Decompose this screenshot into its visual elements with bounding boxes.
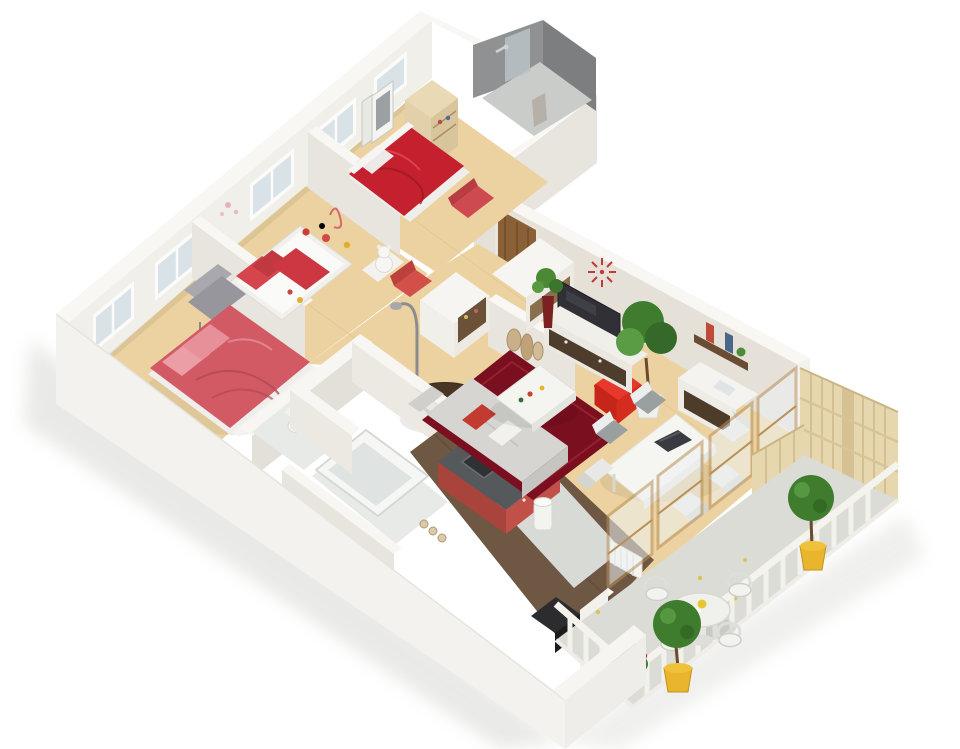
lamp-shade	[390, 302, 402, 310]
toy	[297, 297, 303, 303]
wall-decal	[225, 202, 231, 208]
shelf-plant	[737, 348, 746, 357]
drawer-knob	[598, 359, 601, 362]
foliage	[788, 475, 834, 521]
table-item	[527, 391, 532, 396]
apartment-isometric-svg	[0, 0, 960, 749]
frame-back	[362, 95, 372, 147]
foliage-dark	[680, 625, 694, 639]
foliage	[616, 328, 644, 356]
toy	[287, 289, 292, 294]
teddy-ear	[387, 245, 391, 249]
toy-rocking-horse	[322, 234, 330, 242]
lemon	[698, 600, 707, 609]
table-item	[519, 398, 524, 403]
red-vase	[542, 296, 554, 328]
foliage-light	[794, 482, 810, 498]
wall-decal	[220, 212, 224, 216]
table-item	[540, 386, 545, 391]
teddy-ear	[377, 245, 381, 249]
foliage	[653, 600, 701, 648]
clothes	[446, 116, 450, 120]
shelf-item	[464, 315, 468, 319]
pot-rim	[664, 663, 692, 673]
shelf-item	[474, 309, 478, 313]
foliage	[645, 322, 677, 354]
clothes	[438, 120, 442, 124]
drawer-knob	[564, 340, 567, 343]
fence-post	[842, 387, 854, 483]
floor-plan-3d-render	[0, 0, 960, 749]
foliage-dark	[813, 499, 827, 513]
drawer-handle	[522, 498, 525, 501]
pot-rim	[800, 541, 826, 551]
foliage-light	[660, 608, 676, 624]
toy	[302, 228, 309, 235]
shower-head-icon	[504, 45, 509, 50]
trash-bin	[534, 498, 552, 531]
toy-duck	[344, 242, 350, 248]
bottles	[420, 520, 446, 542]
wall-decal	[234, 210, 238, 214]
